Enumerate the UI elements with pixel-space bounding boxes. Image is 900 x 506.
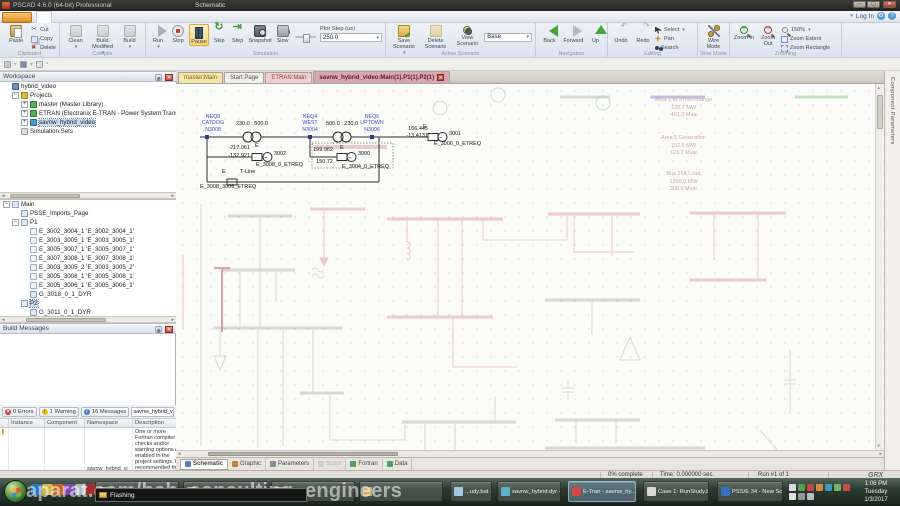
stop-button[interactable]: Stop bbox=[169, 24, 187, 44]
taskbar-app-button[interactable]: Case 1: RunStudy.b... bbox=[643, 481, 709, 502]
windows-logo-icon bbox=[12, 488, 21, 498]
view-scenario-icon bbox=[463, 26, 471, 34]
component-parameters-panel-tab[interactable]: Component Parameters bbox=[884, 71, 900, 470]
pscad-app-icon bbox=[2, 2, 10, 9]
source-tag: E bbox=[255, 143, 259, 149]
tree-node-icon bbox=[30, 255, 37, 262]
tree-node-icon bbox=[30, 110, 37, 117]
step-icon bbox=[232, 25, 244, 37]
group-simulation: Run Stop Pause Skip Step Snapshot Slow P… bbox=[146, 23, 386, 57]
project-tree-item[interactable]: E_3003_3005_2 'E_3003_3005_2' bbox=[0, 263, 176, 272]
folder-icon bbox=[99, 492, 107, 498]
group-zooming: +Zoom In −Zoom Out 150% Zoom Extent Zoom… bbox=[730, 23, 842, 57]
column-header[interactable]: Component bbox=[45, 419, 85, 427]
error-icon: ✕ bbox=[5, 409, 11, 415]
clean-button[interactable]: Clean bbox=[63, 24, 88, 50]
run-icon bbox=[158, 25, 167, 37]
tray-icon[interactable] bbox=[798, 493, 805, 500]
taskbar-button-label: savnw_hybrid.dyr - ... bbox=[512, 489, 561, 495]
view-mode-tabs: Schematic Graphic Parameters Script Fort… bbox=[176, 457, 884, 470]
svg-text:~: ~ bbox=[264, 156, 268, 162]
snapshot-button[interactable]: Snapshot bbox=[248, 24, 273, 44]
tree-node-icon bbox=[21, 128, 28, 135]
view-mode-tab[interactable]: Script bbox=[314, 459, 346, 470]
source-p-value: 199.962 bbox=[301, 147, 333, 153]
taskbar-button-label: Case 1: RunStudy.b... bbox=[658, 489, 709, 495]
clean-icon bbox=[70, 25, 82, 37]
scenario-combo[interactable]: Base▾ bbox=[484, 33, 532, 42]
source-q-value: -13.4131 bbox=[398, 133, 428, 139]
document-tab[interactable]: Start Page ✕ bbox=[224, 72, 264, 83]
project-tree-item[interactable]: E_3005_3007_1 'E_3005_3007_1' bbox=[0, 245, 176, 254]
warning-icon: ! bbox=[2, 429, 4, 435]
scrollbar-thumb[interactable] bbox=[208, 452, 398, 456]
view-mode-tab[interactable]: Schematic bbox=[180, 459, 228, 470]
source-id: 3002 bbox=[274, 151, 286, 157]
pan-button[interactable]: Pan bbox=[655, 35, 685, 43]
ribbon-tab[interactable] bbox=[52, 11, 66, 23]
app-icon bbox=[721, 487, 730, 496]
taskbar-clock[interactable]: 1:06 PM Tuesday 1/3/2017 bbox=[854, 480, 898, 504]
application-menu-button[interactable] bbox=[2, 12, 32, 23]
zoom-extent-icon bbox=[781, 36, 788, 43]
source-q-value: 150.72 bbox=[301, 159, 333, 165]
project-tree-item[interactable]: E_3007_3008_1 'E_3007_3008_1' bbox=[0, 254, 176, 263]
view-mode-icon bbox=[185, 461, 191, 467]
column-header[interactable]: Instance bbox=[9, 419, 45, 427]
workspace-tree: hybrid_video Projects master (Master Lib… bbox=[0, 82, 176, 192]
combo-arrow-icon: ▾ bbox=[526, 34, 529, 40]
zoom-out-icon: − bbox=[764, 26, 772, 34]
copy-icon bbox=[31, 36, 38, 43]
save-scenario-icon bbox=[398, 25, 410, 37]
cut-button[interactable]: Cut bbox=[31, 26, 56, 34]
group-active-scenario: Save Scenario Delete Scenario View Scena… bbox=[386, 23, 536, 57]
zoom-out-button[interactable]: −Zoom Out bbox=[757, 24, 779, 47]
project-tree-item[interactable]: E_3002_3004_1 'E_3002_3004_1' bbox=[0, 227, 176, 236]
scrollbar-thumb[interactable] bbox=[10, 194, 80, 198]
ribbon-tab[interactable] bbox=[36, 11, 52, 23]
app-icon bbox=[572, 487, 581, 496]
select-button[interactable]: Select bbox=[655, 26, 685, 34]
project-tree-item[interactable]: E_3005_3006_1 'E_3005_3006_1' bbox=[0, 281, 176, 290]
schematic-drawing: ~ ~ ~ bbox=[176, 84, 884, 450]
tree-node-icon bbox=[30, 246, 37, 253]
stop-icon bbox=[172, 25, 184, 37]
tree-expander-icon[interactable] bbox=[21, 119, 28, 126]
document-tab[interactable]: savnw_hybrid_video:Main(1).P1(1).P2(1) ✕ bbox=[313, 71, 450, 83]
forward-icon bbox=[573, 25, 582, 37]
message-icon: i bbox=[84, 409, 90, 415]
source-box-3001[interactable] bbox=[428, 134, 438, 141]
project-tree-item[interactable]: E_3003_3005_1 'E_3003_3005_1' bbox=[0, 236, 176, 245]
bus-node-n3006[interactable] bbox=[370, 135, 374, 139]
combo-arrow-icon: ▾ bbox=[377, 35, 380, 41]
taskbar-button-label: E-Tran - savnw_hy... bbox=[583, 489, 636, 495]
select-icon bbox=[655, 27, 662, 34]
view-mode-icon bbox=[350, 461, 356, 467]
taskbar-app-button[interactable]: PSS/E 34 - New Sc... bbox=[717, 481, 783, 502]
build-messages-toolbar: ✕0 Errors !1 Warning i16 Messages savnw_… bbox=[0, 405, 176, 419]
undo-button[interactable]: Undo bbox=[611, 24, 631, 44]
tray-icon[interactable] bbox=[789, 484, 796, 491]
plot-step-label: Plot Step (us) bbox=[320, 26, 382, 32]
group-editing: Undo Redo Select Pan Search Editing bbox=[608, 23, 698, 57]
view-scenario-button[interactable]: View Scenario bbox=[453, 24, 483, 47]
app-icon bbox=[647, 487, 656, 496]
zoom-in-icon: + bbox=[740, 26, 748, 34]
transformer-ratio-label[interactable]: 500.0 : 230.0 bbox=[312, 121, 372, 127]
slow-icon bbox=[277, 25, 289, 37]
up-icon bbox=[595, 25, 607, 34]
close-icon[interactable]: ✕ bbox=[165, 326, 173, 333]
tray-icon[interactable] bbox=[843, 484, 850, 491]
left-dock: Workspace ✕ hybrid_video Projects master… bbox=[0, 71, 176, 470]
area-annotation: Area 1 to 3 Interchange128.7 MW-401.0 Mv… bbox=[616, 97, 751, 120]
build-icon bbox=[124, 25, 136, 37]
help-icon[interactable]: ? bbox=[888, 12, 896, 20]
svg-text:~: ~ bbox=[348, 156, 352, 162]
build-button[interactable]: Build bbox=[117, 24, 142, 50]
pause-button[interactable]: Pause bbox=[189, 24, 209, 46]
project-tree-item[interactable]: Main bbox=[0, 200, 176, 209]
slow-button[interactable]: Slow bbox=[274, 24, 290, 44]
tline-tag: E bbox=[222, 169, 226, 175]
view-mode-tab[interactable]: Graphic bbox=[228, 459, 266, 470]
group-compile: Clean Build Modified Build Compile bbox=[60, 23, 146, 57]
scrollbar-thumb[interactable] bbox=[877, 95, 883, 129]
tree-node-icon bbox=[21, 210, 28, 217]
view-mode-tab[interactable]: Parameters bbox=[266, 459, 314, 470]
ribbon: Paste Cut Copy Delete Clipboard Clean Bu… bbox=[0, 23, 900, 58]
namespace-filter-combo[interactable]: savnw_hybrid_vide bbox=[131, 407, 174, 417]
schematic-canvas[interactable]: ~ ~ ~ NEQ8CATDOGN3008 NEQ4WESTN3004 NEQ6… bbox=[176, 84, 884, 450]
document-tab-bar: master:Main ✕ Start Page ✕ ETRAN:Main ✕ … bbox=[176, 71, 884, 84]
view-mode-tab[interactable]: Data bbox=[383, 459, 413, 470]
taskbar-pinned-icon[interactable] bbox=[42, 484, 53, 495]
tree-node-icon bbox=[21, 300, 28, 307]
close-tab-icon[interactable]: ✕ bbox=[437, 74, 444, 81]
minimize-button[interactable]: — bbox=[853, 1, 866, 8]
delete-scenario-icon bbox=[430, 25, 442, 37]
tray-icon[interactable] bbox=[834, 484, 841, 491]
pin-icon[interactable] bbox=[155, 74, 162, 81]
tree-node-icon bbox=[30, 291, 37, 298]
project-horizontal-scrollbar[interactable] bbox=[0, 316, 176, 323]
source-name: E_3006_0_ETREQ bbox=[434, 141, 481, 147]
tree-node-icon bbox=[12, 83, 19, 90]
tray-icon[interactable] bbox=[807, 484, 814, 491]
speed-slider[interactable] bbox=[295, 36, 316, 38]
column-header[interactable]: Namespace bbox=[85, 419, 133, 427]
copy-button[interactable]: Copy bbox=[31, 35, 56, 43]
canvas-horizontal-scrollbar[interactable] bbox=[176, 450, 884, 457]
column-header[interactable]: Description bbox=[133, 419, 176, 427]
dropdown-caret-icon[interactable]: ▾ bbox=[30, 61, 33, 68]
project-tree-item[interactable]: E_3005_3008_1 'E_3005_3008_1' bbox=[0, 272, 176, 281]
tray-icon[interactable] bbox=[789, 493, 796, 500]
taskbar-pinned-icon[interactable] bbox=[64, 484, 75, 495]
tray-icon[interactable] bbox=[825, 484, 832, 491]
source-p-value: -217.061 bbox=[214, 145, 250, 151]
workspace-tree-item[interactable]: savnw_hybrid_video bbox=[0, 118, 176, 127]
taskbar-button-label: ...udy.bat - Not... bbox=[465, 489, 492, 495]
delete-scenario-button[interactable]: Delete Scenario bbox=[421, 24, 451, 50]
build-modified-icon bbox=[97, 25, 109, 37]
active-view-title: Schematic bbox=[195, 2, 225, 9]
source-name: E_3008_0_ETREQ bbox=[256, 162, 303, 168]
save-icon[interactable] bbox=[20, 61, 27, 68]
workspace-panel-header: Workspace ✕ bbox=[0, 71, 176, 82]
run-button[interactable]: Run bbox=[149, 24, 167, 50]
project-tree-item[interactable]: G_3011_0_1_DYR bbox=[0, 308, 176, 316]
document-tab[interactable]: master:Main ✕ bbox=[178, 72, 223, 83]
area-annotation: Area 5 Generation152.5 MW123.2 Mvar bbox=[616, 135, 751, 158]
source-id: 3001 bbox=[449, 131, 461, 137]
app-icon bbox=[363, 487, 372, 496]
system-tray bbox=[787, 481, 853, 503]
app-icon bbox=[501, 487, 510, 496]
account-area: ▾ Log In ⚙ ? bbox=[850, 12, 896, 20]
quick-access-toolbar: ▾ ▾ ▪ bbox=[0, 58, 900, 71]
background-red-element bbox=[214, 268, 230, 332]
source-q-value: -132.921 bbox=[214, 153, 250, 159]
taskbar-pinned-icon[interactable] bbox=[75, 484, 86, 495]
pause-icon bbox=[193, 26, 205, 38]
taskbar-app-button[interactable] bbox=[359, 481, 443, 502]
close-icon[interactable]: ✕ bbox=[165, 74, 173, 81]
tree-node-icon bbox=[30, 282, 37, 289]
wire-mode-icon bbox=[708, 25, 720, 37]
ribbon-tab[interactable] bbox=[108, 11, 122, 23]
project-tree-item[interactable]: P1 bbox=[0, 218, 176, 227]
group-clipboard: Paste Cut Copy Delete Clipboard bbox=[0, 23, 60, 57]
start-button[interactable] bbox=[4, 480, 27, 503]
source-tag: E bbox=[423, 124, 427, 130]
source-box-3000[interactable] bbox=[337, 154, 347, 161]
view-mode-icon bbox=[232, 461, 238, 467]
build-messages-header: Build Messages ✕ bbox=[0, 323, 176, 334]
workspace-tree-item[interactable]: Simulation Sets bbox=[0, 127, 176, 136]
tree-node-icon bbox=[30, 273, 37, 280]
tree-expander-icon[interactable] bbox=[3, 201, 10, 208]
paste-icon bbox=[10, 25, 22, 37]
area-annotation: Bus 154 Load1200.0 MW200.0 Mvar bbox=[616, 171, 751, 194]
back-button[interactable]: Back bbox=[539, 24, 560, 44]
back-icon bbox=[549, 25, 558, 37]
errors-filter-button[interactable]: ✕0 Errors bbox=[2, 407, 37, 417]
tray-icon[interactable] bbox=[798, 484, 805, 491]
tree-node-icon bbox=[12, 201, 19, 208]
dropdown-caret-icon[interactable]: ▾ bbox=[14, 61, 17, 68]
tline-label: T-Line bbox=[240, 169, 255, 175]
tree-node-icon bbox=[21, 92, 28, 99]
canvas-vertical-scrollbar[interactable] bbox=[875, 84, 883, 450]
source-name: E_3004_0_ETREQ bbox=[342, 164, 389, 170]
taskbar-pinned-icon[interactable] bbox=[53, 484, 64, 495]
document-tab[interactable]: ETRAN:Main ✕ bbox=[265, 72, 312, 83]
new-document-icon[interactable] bbox=[4, 61, 11, 68]
workspace-tree-item[interactable]: hybrid_video bbox=[0, 82, 176, 91]
transformer-ratio-label[interactable]: 230.0 : 500.0 bbox=[222, 121, 282, 127]
source-id: 3000 bbox=[358, 151, 370, 157]
tree-node-icon bbox=[30, 264, 37, 271]
settings-icon[interactable]: ⚙ bbox=[877, 12, 885, 20]
title-bar: PSCAD 4.6.0 (64-bit) Professional Schema… bbox=[0, 0, 900, 11]
zoom-level-combo[interactable]: 150% bbox=[781, 26, 830, 34]
project-tree-item[interactable]: P2 bbox=[0, 299, 176, 308]
tree-expander-icon[interactable] bbox=[21, 101, 28, 108]
search-icon bbox=[655, 46, 659, 50]
taskbar-tooltip: Flashing bbox=[95, 488, 307, 502]
view-mode-tab[interactable]: Fortran bbox=[346, 459, 382, 470]
workspace-tree-item[interactable]: Projects bbox=[0, 91, 176, 100]
workspace-tree-item[interactable]: ETRAN (Electranix E-TRAN - Power System … bbox=[0, 109, 176, 118]
plot-step-combo[interactable]: 250.0▾ bbox=[320, 33, 382, 42]
ribbon-tabs bbox=[36, 11, 136, 23]
taskbar-app-button[interactable]: E-Tran - savnw_hy... bbox=[568, 481, 636, 502]
zoom-level-icon bbox=[782, 27, 788, 33]
zoom-in-button[interactable]: +Zoom In bbox=[733, 24, 755, 41]
taskbar-button-label: PSS/E 34 - New Sc... bbox=[732, 489, 783, 495]
view-mode-icon bbox=[318, 461, 324, 467]
view-mode-icon bbox=[270, 461, 276, 467]
close-button[interactable]: ✕ bbox=[883, 1, 896, 8]
group-navigation: Back Forward Up Navigation bbox=[536, 23, 608, 57]
cut-icon bbox=[31, 27, 38, 34]
project-tree-item[interactable]: G_3018_0_1_DYR bbox=[0, 290, 176, 299]
tree-expander-icon[interactable] bbox=[12, 92, 19, 99]
tree-node-icon bbox=[30, 101, 37, 108]
pin-icon[interactable] bbox=[155, 326, 162, 333]
project-tree: Main PSSE_Imports_Page P1 E_3002_3004_1 … bbox=[0, 199, 176, 316]
ribbon-tab[interactable] bbox=[122, 11, 136, 23]
source-box-3002[interactable] bbox=[252, 154, 262, 161]
tree-node-icon bbox=[30, 309, 37, 316]
workspace-tree-item[interactable]: master (Master Library) bbox=[0, 100, 176, 109]
workspace-horizontal-scrollbar[interactable] bbox=[0, 192, 176, 199]
messages-filter-button[interactable]: i16 Messages bbox=[81, 407, 129, 417]
scrollbar-thumb[interactable] bbox=[26, 318, 106, 322]
snapshot-icon bbox=[254, 25, 266, 37]
view-mode-icon bbox=[387, 461, 393, 467]
tree-expander-icon[interactable] bbox=[12, 219, 19, 226]
step-button[interactable]: Step bbox=[229, 24, 245, 44]
app-icon bbox=[454, 487, 463, 496]
group-wire-mode: Wire Mode Wire Mode bbox=[698, 23, 730, 57]
bus-node-n3008[interactable] bbox=[205, 135, 209, 139]
status-bar: 0% complete Time: 0.000000 sec. Run #1 o… bbox=[0, 470, 900, 478]
redo-button[interactable]: Redo bbox=[633, 24, 653, 44]
skip-icon bbox=[213, 25, 225, 37]
bus-node-n3004[interactable] bbox=[308, 135, 312, 139]
chevron-down-icon[interactable]: ▾ bbox=[850, 13, 853, 19]
project-tree-item[interactable]: PSSE_Imports_Page bbox=[0, 209, 176, 218]
warnings-filter-button[interactable]: !1 Warning bbox=[39, 407, 79, 417]
tray-icon[interactable] bbox=[816, 484, 823, 491]
maximize-button[interactable]: ▢ bbox=[867, 1, 880, 8]
tree-node-icon bbox=[21, 219, 28, 226]
log-in-link[interactable]: Log In bbox=[856, 13, 874, 20]
pointer-tool-icon[interactable] bbox=[36, 61, 43, 68]
ribbon-tab[interactable] bbox=[66, 11, 80, 23]
source-tag: E bbox=[340, 145, 344, 151]
tree-node-icon bbox=[30, 119, 37, 126]
paste-button[interactable]: Paste bbox=[3, 24, 29, 44]
ribbon-tab[interactable] bbox=[94, 11, 108, 23]
window-title: PSCAD 4.6.0 (64-bit) Professional bbox=[13, 2, 112, 9]
ribbon-tab[interactable] bbox=[80, 11, 94, 23]
icon-column-header bbox=[0, 419, 9, 427]
taskbar-app-button[interactable]: savnw_hybrid.dyr - ... bbox=[497, 481, 561, 502]
forward-button[interactable]: Forward bbox=[562, 24, 585, 44]
more-tools-icon[interactable]: ▪ bbox=[46, 61, 48, 67]
pan-icon bbox=[655, 36, 662, 43]
tree-node-icon bbox=[30, 237, 37, 244]
tree-node-icon bbox=[30, 228, 37, 235]
skip-button[interactable]: Skip bbox=[211, 24, 227, 44]
tree-expander-icon[interactable] bbox=[21, 110, 28, 117]
up-button[interactable]: Up bbox=[587, 24, 604, 44]
table-header-row: Instance Component Namespace Description bbox=[0, 419, 176, 428]
warning-icon: ! bbox=[42, 409, 48, 415]
taskbar-app-button[interactable]: ...udy.bat - Not... bbox=[450, 481, 492, 502]
wire-mode-button[interactable]: Wire Mode bbox=[701, 24, 726, 50]
taskbar-pinned-icon[interactable] bbox=[31, 484, 42, 495]
tray-icon[interactable] bbox=[807, 493, 814, 500]
tline-name: E_3008_3006_ETREQ bbox=[200, 184, 256, 190]
